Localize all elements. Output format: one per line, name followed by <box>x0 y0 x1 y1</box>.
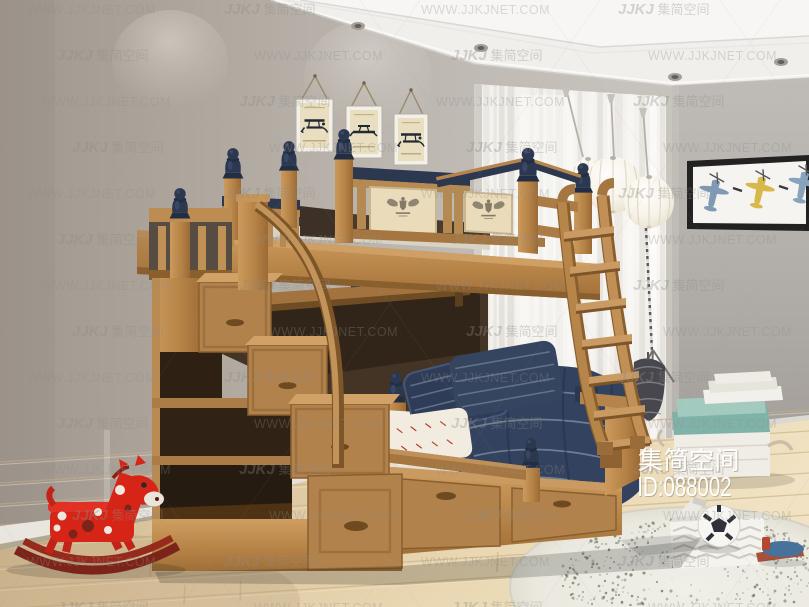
svg-text:JJKJ 集简空间: JJKJ 集简空间 <box>466 507 557 524</box>
svg-text:JJKJ 集简空间: JJKJ 集简空间 <box>451 47 542 64</box>
svg-text:JJKJ 集简空间: JJKJ 集简空间 <box>466 323 557 340</box>
svg-text:WWW.JJKJNET.COM: WWW.JJKJNET.COM <box>269 141 398 155</box>
svg-text:JJKJ 集简空间: JJKJ 集简空间 <box>633 277 724 294</box>
svg-text:WWW.JJKJNET.COM: WWW.JJKJNET.COM <box>648 601 777 607</box>
svg-text:JJKJ 集简空间: JJKJ 集简空间 <box>451 599 542 607</box>
svg-text:WWW.JJKJNET.COM: WWW.JJKJNET.COM <box>663 509 792 523</box>
svg-text:JJKJ 集简空间: JJKJ 集简空间 <box>57 415 148 432</box>
svg-text:WWW.JJKJNET.COM: WWW.JJKJNET.COM <box>421 187 550 201</box>
svg-text:WWW.JJKJNET.COM: WWW.JJKJNET.COM <box>0 141 4 155</box>
svg-text:WWW.JJKJNET.COM: WWW.JJKJNET.COM <box>254 233 383 247</box>
svg-text:JJKJ 集简空间: JJKJ 集简空间 <box>618 553 709 570</box>
svg-text:ID:088002: ID:088002 <box>637 472 731 503</box>
svg-text:WWW.JJKJNET.COM: WWW.JJKJNET.COM <box>421 371 550 385</box>
svg-text:JJKJ 集简空间: JJKJ 集简空间 <box>239 461 330 478</box>
svg-text:JJKJ 集简空间: JJKJ 集简空间 <box>618 369 709 386</box>
svg-text:WWW.JJKJNET.COM: WWW.JJKJNET.COM <box>421 555 550 569</box>
svg-text:WWW.JJKJNET.COM: WWW.JJKJNET.COM <box>42 95 171 109</box>
svg-text:JJKJ 集简空间: JJKJ 集简空间 <box>224 369 315 386</box>
svg-text:JJKJ 集简空间: JJKJ 集简空间 <box>239 93 330 110</box>
svg-text:WWW.JJKJNET.COM: WWW.JJKJNET.COM <box>27 555 156 569</box>
svg-text:JJKJ 集简空间: JJKJ 集简空间 <box>72 323 163 340</box>
svg-text:JJKJ 集简空间: JJKJ 集简空间 <box>57 599 148 607</box>
svg-text:JJKJ 集简空间: JJKJ 集简空间 <box>633 93 724 110</box>
svg-text:WWW.JJKJNET.COM: WWW.JJKJNET.COM <box>0 325 4 339</box>
svg-text:WWW.JJKJNET.COM: WWW.JJKJNET.COM <box>42 463 171 477</box>
svg-text:WWW.JJKJNET.COM: WWW.JJKJNET.COM <box>648 49 777 63</box>
svg-text:JJKJ 集简空间: JJKJ 集简空间 <box>224 185 315 202</box>
svg-text:WWW.JJKJNET.COM: WWW.JJKJNET.COM <box>27 3 156 17</box>
svg-text:JJKJ 集简空间: JJKJ 集简空间 <box>451 415 542 432</box>
svg-text:JJKJ 集简空间: JJKJ 集简空间 <box>224 553 315 570</box>
svg-text:WWW.JJKJNET.COM: WWW.JJKJNET.COM <box>269 509 398 523</box>
svg-text:WWW.JJKJNET.COM: WWW.JJKJNET.COM <box>421 3 550 17</box>
svg-text:WWW.JJKJNET.COM: WWW.JJKJNET.COM <box>254 49 383 63</box>
svg-text:WWW.JJKJNET.COM: WWW.JJKJNET.COM <box>436 95 565 109</box>
svg-text:WWW.JJKJNET.COM: WWW.JJKJNET.COM <box>254 417 383 431</box>
svg-text:WWW.JJKJNET.COM: WWW.JJKJNET.COM <box>648 233 777 247</box>
svg-text:JJKJ 集简空间: JJKJ 集简空间 <box>618 185 709 202</box>
svg-text:WWW.JJKJNET.COM: WWW.JJKJNET.COM <box>648 417 777 431</box>
svg-text:WWW.JJKJNET.COM: WWW.JJKJNET.COM <box>42 279 171 293</box>
svg-text:JJKJ 集简空间: JJKJ 集简空间 <box>618 1 709 18</box>
svg-text:WWW.JJKJNET.COM: WWW.JJKJNET.COM <box>27 371 156 385</box>
svg-text:JJKJ 集简空间: JJKJ 集简空间 <box>57 47 148 64</box>
svg-text:JJKJ 集简空间: JJKJ 集简空间 <box>451 231 542 248</box>
svg-text:WWW.JJKJNET.COM: WWW.JJKJNET.COM <box>27 187 156 201</box>
svg-text:JJKJ 集简空间: JJKJ 集简空间 <box>72 507 163 524</box>
svg-text:集简空间: 集简空间 <box>638 447 740 475</box>
svg-text:JJKJ 集简空间: JJKJ 集简空间 <box>72 139 163 156</box>
svg-text:WWW.JJKJNET.COM: WWW.JJKJNET.COM <box>436 279 565 293</box>
svg-text:WWW.JJKJNET.COM: WWW.JJKJNET.COM <box>269 325 398 339</box>
svg-text:JJKJ 集简空间: JJKJ 集简空间 <box>239 277 330 294</box>
svg-text:JJKJ 集简空间: JJKJ 集简空间 <box>466 139 557 156</box>
svg-text:WWW.JJKJNET.COM: WWW.JJKJNET.COM <box>663 141 792 155</box>
